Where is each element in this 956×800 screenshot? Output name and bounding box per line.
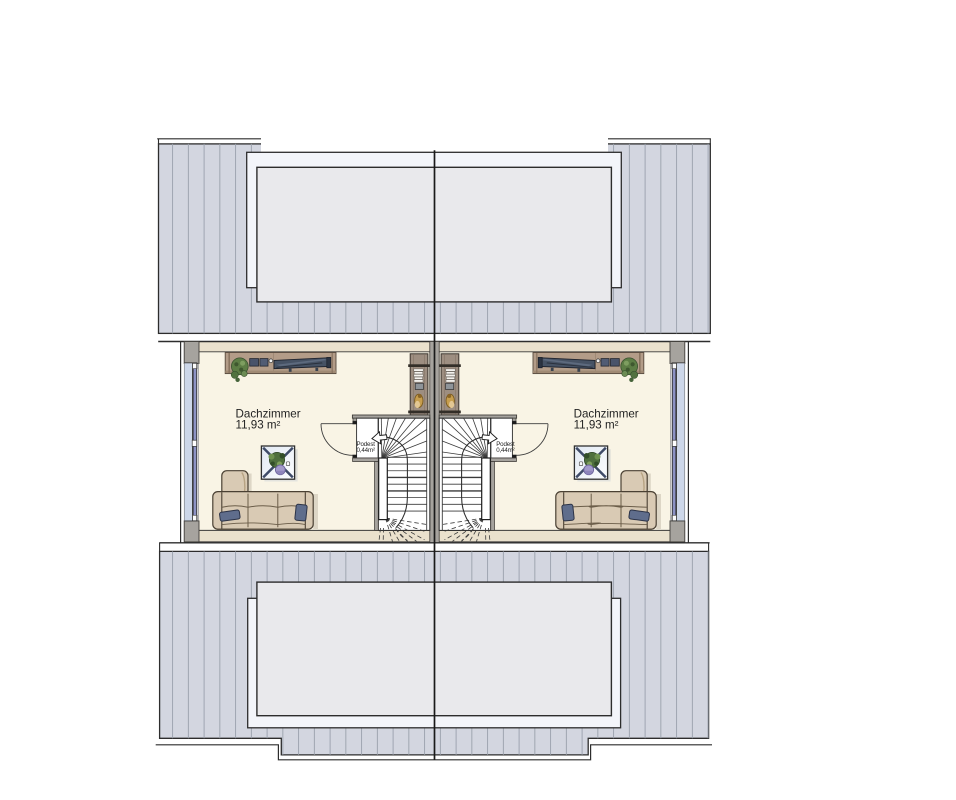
svg-text:11,93 m²: 11,93 m² — [574, 418, 619, 431]
svg-text:11,93 m²: 11,93 m² — [236, 418, 281, 431]
svg-text:0,44m²: 0,44m² — [357, 447, 375, 454]
svg-text:0,44m²: 0,44m² — [496, 447, 514, 454]
